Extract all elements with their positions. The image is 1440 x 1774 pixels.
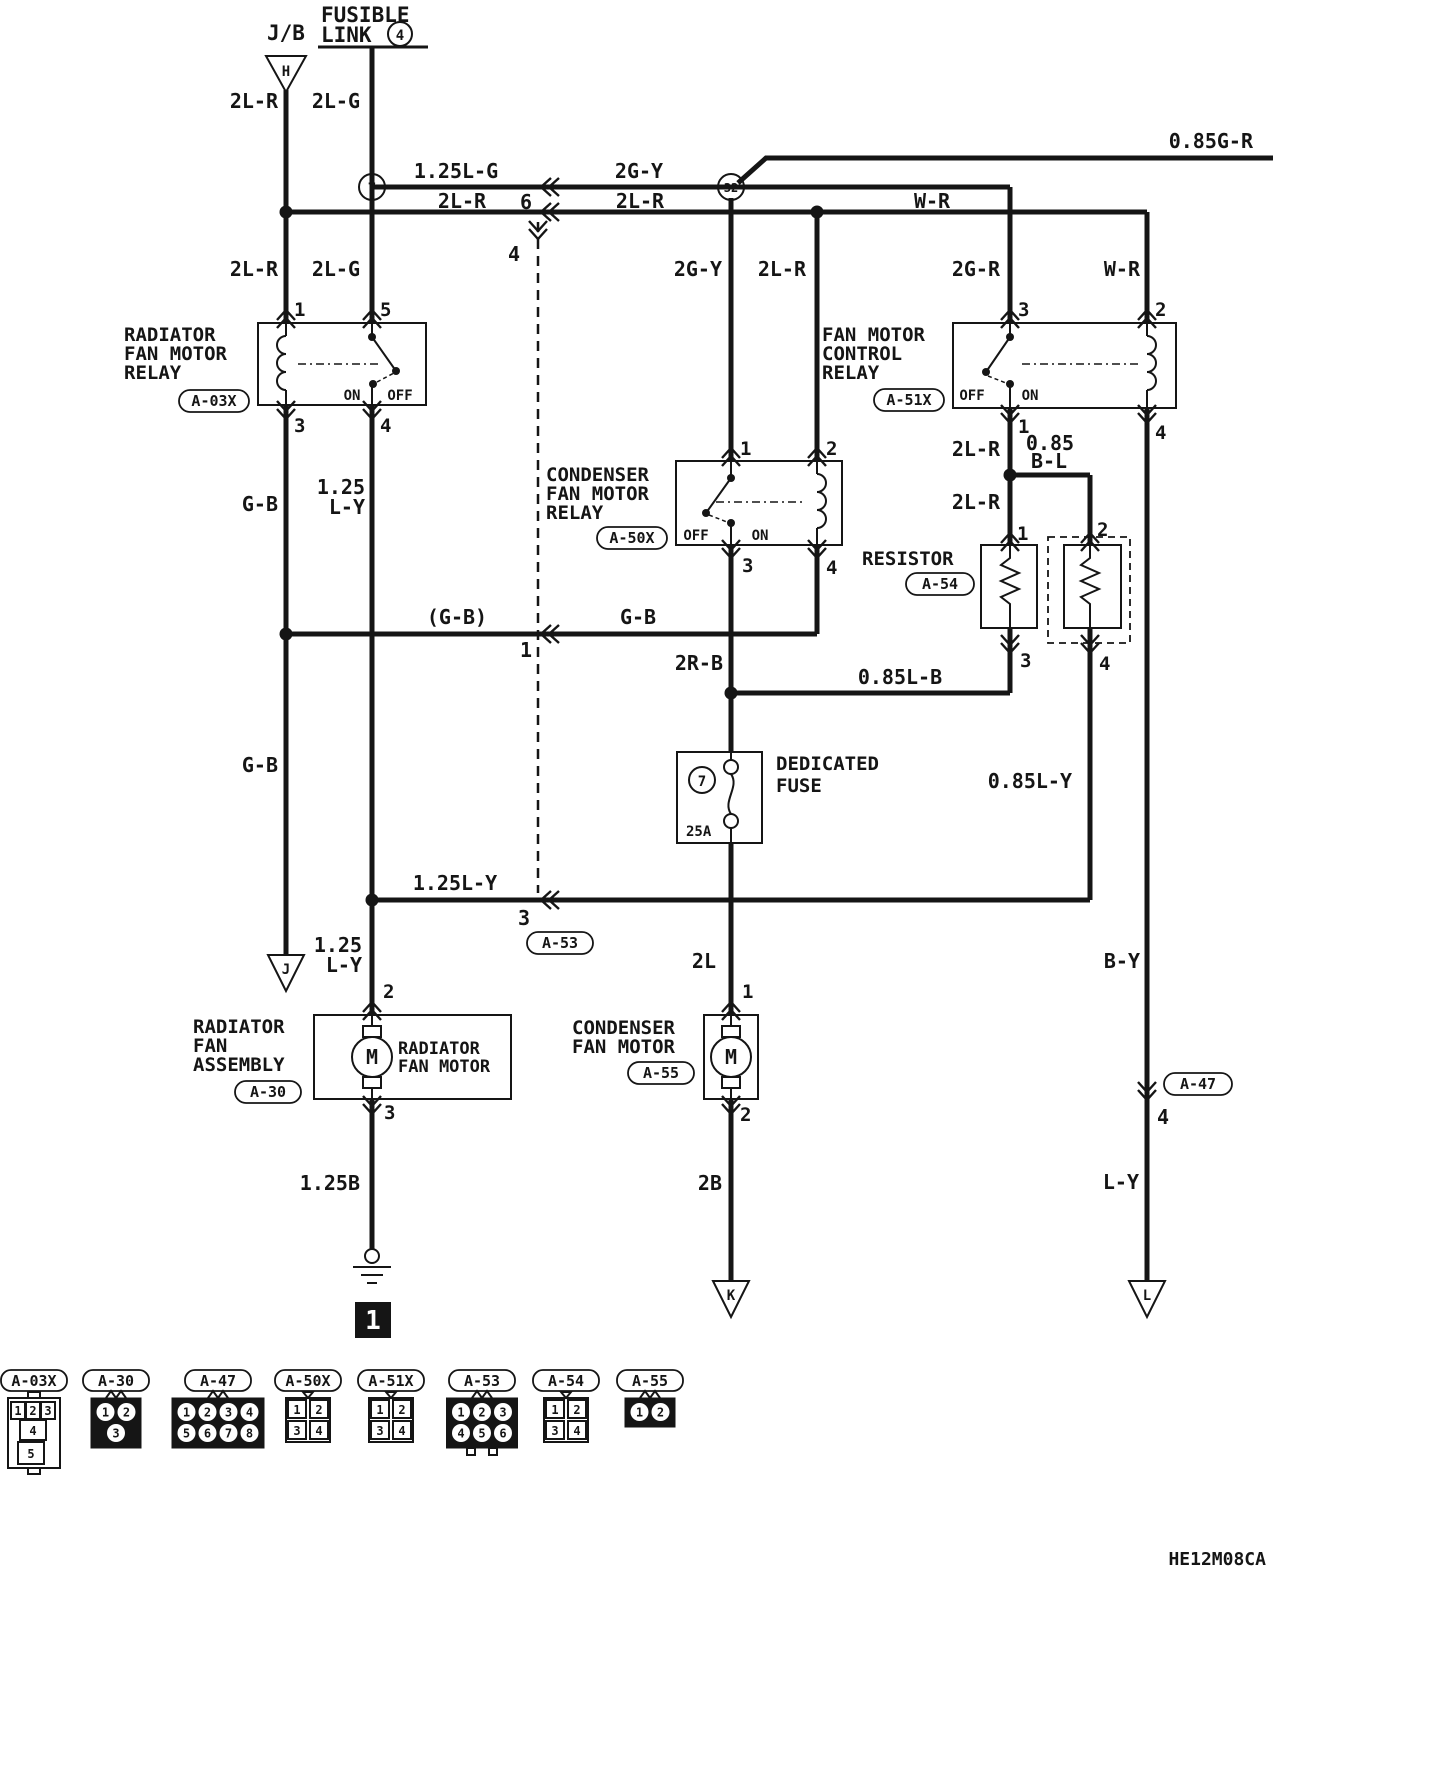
svg-text:1: 1 bbox=[294, 299, 305, 321]
a51x-labels: FAN MOTOR CONTROL RELAY A-51X 3 2 1 4 OF… bbox=[822, 299, 1166, 444]
svg-text:2: 2 bbox=[826, 438, 837, 460]
wire-085gr bbox=[738, 158, 1273, 183]
crossing-pin: 4 bbox=[508, 242, 520, 266]
svg-text:ASSEMBLY: ASSEMBLY bbox=[193, 1054, 285, 1076]
svg-text:A-55: A-55 bbox=[643, 1064, 679, 1082]
legend-label: A-47 bbox=[200, 1372, 236, 1390]
svg-text:1: 1 bbox=[551, 1403, 558, 1417]
svg-text:2: 2 bbox=[657, 1406, 664, 1420]
wire-label: 2L bbox=[692, 949, 716, 973]
svg-text:1: 1 bbox=[457, 1406, 464, 1420]
ground-triangles: H J K L bbox=[266, 56, 1165, 1317]
svg-text:4: 4 bbox=[398, 1424, 405, 1438]
a51x-coil bbox=[1147, 336, 1156, 390]
svg-text:4: 4 bbox=[1099, 653, 1110, 675]
a03x-coil bbox=[277, 336, 286, 390]
fusible-link-line2: LINK bbox=[321, 23, 372, 47]
junction-7: 7 bbox=[368, 181, 376, 197]
svg-text:3: 3 bbox=[44, 1404, 51, 1418]
svg-text:OFF: OFF bbox=[683, 528, 708, 544]
wire-label: 2L-R bbox=[758, 257, 807, 281]
wire-label: 2L-G bbox=[312, 257, 360, 281]
wire-label: 2L-G bbox=[312, 89, 360, 113]
legend-connector-a-55: A-5512 bbox=[617, 1370, 683, 1427]
svg-text:2: 2 bbox=[204, 1406, 211, 1420]
earth-ground-icon bbox=[353, 1249, 391, 1283]
svg-text:6: 6 bbox=[204, 1427, 211, 1441]
junction-32: 32 bbox=[724, 181, 738, 195]
svg-text:2: 2 bbox=[740, 1104, 751, 1126]
svg-text:4: 4 bbox=[380, 415, 391, 437]
wire-label: L-Y bbox=[1103, 1170, 1139, 1194]
resistor-labels: RESISTOR A-54 1 2 3 4 bbox=[862, 519, 1110, 675]
svg-text:4: 4 bbox=[1155, 422, 1166, 444]
wiring-diagram-page: 1 H J K L 7 32 7 bbox=[0, 0, 1440, 1774]
svg-text:4: 4 bbox=[315, 1424, 322, 1438]
svg-text:4: 4 bbox=[29, 1424, 36, 1438]
wire-label: G-B bbox=[620, 605, 656, 629]
svg-text:4: 4 bbox=[826, 557, 837, 579]
wire-label: L-Y bbox=[329, 495, 365, 519]
diagram-code: HE12M08CA bbox=[1168, 1549, 1266, 1570]
svg-text:1: 1 bbox=[636, 1406, 643, 1420]
resistor-elements bbox=[1001, 545, 1099, 628]
legend-label: A-03X bbox=[11, 1372, 56, 1390]
ground-j-label: J bbox=[282, 962, 290, 978]
svg-text:3: 3 bbox=[742, 555, 753, 577]
svg-text:ON: ON bbox=[344, 388, 361, 404]
svg-text:3: 3 bbox=[499, 1406, 506, 1420]
svg-text:RESISTOR: RESISTOR bbox=[862, 548, 954, 570]
svg-text:FAN MOTOR: FAN MOTOR bbox=[572, 1036, 676, 1058]
svg-text:OFF: OFF bbox=[387, 388, 412, 404]
svg-text:1: 1 bbox=[183, 1406, 190, 1420]
wire-label: 1.25L-Y bbox=[413, 871, 497, 895]
legend-label: A-50X bbox=[285, 1372, 330, 1390]
crossing-pin: 4 bbox=[1157, 1105, 1169, 1129]
wire-label: 0.85G-R bbox=[1169, 129, 1254, 153]
wire-label: L-Y bbox=[326, 953, 362, 977]
svg-text:2: 2 bbox=[29, 1404, 36, 1418]
svg-text:A-50X: A-50X bbox=[609, 529, 654, 547]
svg-text:7: 7 bbox=[225, 1427, 232, 1441]
svg-text:OFF: OFF bbox=[959, 388, 984, 404]
wire-label: 1.25L-G bbox=[414, 159, 498, 183]
svg-text:3: 3 bbox=[1018, 299, 1029, 321]
svg-text:RADIATOR: RADIATOR bbox=[398, 1039, 481, 1059]
svg-text:5: 5 bbox=[380, 299, 391, 321]
svg-text:25A: 25A bbox=[686, 824, 712, 840]
header-labels: J/B FUSIBLE LINK 4 bbox=[267, 3, 412, 47]
svg-text:6: 6 bbox=[499, 1427, 506, 1441]
svg-text:3: 3 bbox=[293, 1424, 300, 1438]
svg-text:2: 2 bbox=[315, 1403, 322, 1417]
wire-labels: 2L-R 2L-G 1.25L-G 2G-Y 0.85G-R 2L-R 2L-R… bbox=[230, 89, 1254, 1195]
svg-text:ON: ON bbox=[1022, 388, 1039, 404]
main-wires bbox=[286, 47, 1273, 1281]
crossing-pin: 6 bbox=[520, 190, 532, 214]
svg-text:FAN MOTOR: FAN MOTOR bbox=[398, 1057, 491, 1077]
wire-label: W-R bbox=[914, 189, 951, 213]
ground-number-badge: 1 bbox=[355, 1302, 391, 1338]
svg-text:1: 1 bbox=[742, 981, 753, 1003]
svg-text:3: 3 bbox=[1020, 650, 1031, 672]
legend-connector-a-54: A-541234 bbox=[533, 1370, 599, 1442]
svg-text:4: 4 bbox=[457, 1427, 464, 1441]
crossing-pin: 3 bbox=[518, 906, 530, 930]
legend-connector-a-51x: A-51X1234 bbox=[358, 1370, 424, 1442]
legend-label: A-54 bbox=[548, 1372, 584, 1390]
svg-text:1: 1 bbox=[102, 1406, 109, 1420]
wire-label: G-B bbox=[242, 492, 278, 516]
ground-k-label: K bbox=[727, 1288, 736, 1304]
svg-text:1: 1 bbox=[1018, 416, 1029, 438]
svg-text:A-51X: A-51X bbox=[886, 391, 931, 409]
a50x-coil bbox=[817, 474, 826, 528]
svg-text:RELAY: RELAY bbox=[546, 502, 604, 524]
legend-label: A-51X bbox=[368, 1372, 413, 1390]
legend-label: A-53 bbox=[464, 1372, 500, 1390]
wire-label: 0.85L-Y bbox=[988, 769, 1072, 793]
wire-label: 2L-R bbox=[230, 89, 279, 113]
wire-label: 2L-R bbox=[230, 257, 279, 281]
a30-labels: RADIATOR FAN ASSEMBLY A-30 RADIATOR FAN … bbox=[193, 981, 491, 1124]
svg-text:1: 1 bbox=[293, 1403, 300, 1417]
svg-text:2: 2 bbox=[1155, 299, 1166, 321]
crossing-pin: 1 bbox=[520, 638, 532, 662]
connector-legend: A-03X12345A-30123A-4712345678A-50X1234A-… bbox=[1, 1370, 683, 1474]
legend-connector-a-47: A-4712345678 bbox=[172, 1370, 264, 1448]
legend-label: A-30 bbox=[98, 1372, 134, 1390]
svg-text:4: 4 bbox=[573, 1424, 580, 1438]
fuse-labels: DEDICATED FUSE 25A bbox=[686, 753, 879, 840]
legend-connector-a-53: A-53123456 bbox=[447, 1370, 518, 1455]
svg-text:2: 2 bbox=[398, 1403, 405, 1417]
svg-text:DEDICATED: DEDICATED bbox=[776, 753, 879, 775]
a51x-relay-box bbox=[953, 323, 1176, 408]
svg-text:2: 2 bbox=[478, 1406, 485, 1420]
fuse-number: 7 bbox=[698, 774, 706, 790]
svg-text:5: 5 bbox=[183, 1427, 190, 1441]
svg-text:FUSE: FUSE bbox=[776, 775, 822, 797]
wire-label: 2L-R bbox=[616, 189, 665, 213]
wire-label: G-B bbox=[242, 753, 278, 777]
wire-label: B-L bbox=[1031, 449, 1067, 473]
svg-text:3: 3 bbox=[376, 1424, 383, 1438]
svg-text:1: 1 bbox=[376, 1403, 383, 1417]
wire-label: 2G-Y bbox=[615, 159, 663, 183]
svg-text:5: 5 bbox=[478, 1427, 485, 1441]
svg-text:RELAY: RELAY bbox=[822, 362, 880, 384]
wire-label: B-Y bbox=[1104, 949, 1140, 973]
wire-label: 2L-R bbox=[952, 437, 1001, 461]
a50x-labels: CONDENSER FAN MOTOR RELAY A-50X 1 2 3 4 … bbox=[546, 438, 837, 579]
wire-label: W-R bbox=[1104, 257, 1141, 281]
wire-label: 2B bbox=[698, 1171, 722, 1195]
svg-text:1: 1 bbox=[1017, 523, 1028, 545]
wire-label: 2G-R bbox=[952, 257, 1001, 281]
svg-text:A-54: A-54 bbox=[922, 575, 958, 593]
svg-text:A-03X: A-03X bbox=[191, 392, 236, 410]
wire-label: 2R-B bbox=[675, 651, 723, 675]
legend-connector-a-30: A-30123 bbox=[83, 1370, 149, 1448]
wire-label: 2L-R bbox=[438, 189, 487, 213]
svg-text:ON: ON bbox=[752, 528, 769, 544]
wiring-diagram: 1 H J K L 7 32 7 bbox=[0, 0, 1440, 1774]
legend-connector-a-03x: A-03X12345 bbox=[1, 1370, 67, 1474]
legend-connector-a-50x: A-50X1234 bbox=[275, 1370, 341, 1442]
legend-label: A-55 bbox=[632, 1372, 668, 1390]
svg-text:M: M bbox=[366, 1045, 378, 1069]
svg-text:M: M bbox=[725, 1045, 737, 1069]
ground-l-label: L bbox=[1143, 1288, 1151, 1304]
svg-text:RELAY: RELAY bbox=[124, 362, 182, 384]
svg-text:3: 3 bbox=[112, 1427, 119, 1441]
ground-h-label: H bbox=[282, 64, 290, 80]
svg-text:3: 3 bbox=[551, 1424, 558, 1438]
jb-label: J/B bbox=[267, 21, 305, 45]
wire-label: 0.85L-B bbox=[858, 665, 942, 689]
a47-connector-label: A-47 bbox=[1180, 1075, 1216, 1093]
svg-text:8: 8 bbox=[246, 1427, 253, 1441]
svg-text:2: 2 bbox=[573, 1403, 580, 1417]
wire-label: 1.25B bbox=[300, 1171, 360, 1195]
a53-connector-label: A-53 bbox=[542, 934, 578, 952]
a51x-internals bbox=[982, 323, 1156, 408]
svg-text:A-30: A-30 bbox=[250, 1083, 286, 1101]
wire-label: 2L-R bbox=[952, 490, 1001, 514]
svg-text:2: 2 bbox=[383, 981, 394, 1003]
svg-text:1: 1 bbox=[14, 1404, 21, 1418]
svg-text:2: 2 bbox=[1097, 519, 1108, 541]
ground-number: 1 bbox=[365, 1306, 381, 1336]
wire-label: (G-B) bbox=[427, 605, 487, 629]
svg-text:3: 3 bbox=[384, 1102, 395, 1124]
svg-text:3: 3 bbox=[294, 415, 305, 437]
wire-label: 2G-Y bbox=[674, 257, 722, 281]
a03x-internals bbox=[277, 323, 400, 405]
fusible-num: 4 bbox=[396, 28, 404, 44]
svg-text:3: 3 bbox=[225, 1406, 232, 1420]
svg-text:1: 1 bbox=[740, 438, 751, 460]
a55-labels: CONDENSER FAN MOTOR A-55 M 1 2 bbox=[572, 981, 753, 1126]
svg-text:2: 2 bbox=[123, 1406, 130, 1420]
svg-text:5: 5 bbox=[27, 1447, 34, 1461]
svg-text:4: 4 bbox=[246, 1406, 253, 1420]
